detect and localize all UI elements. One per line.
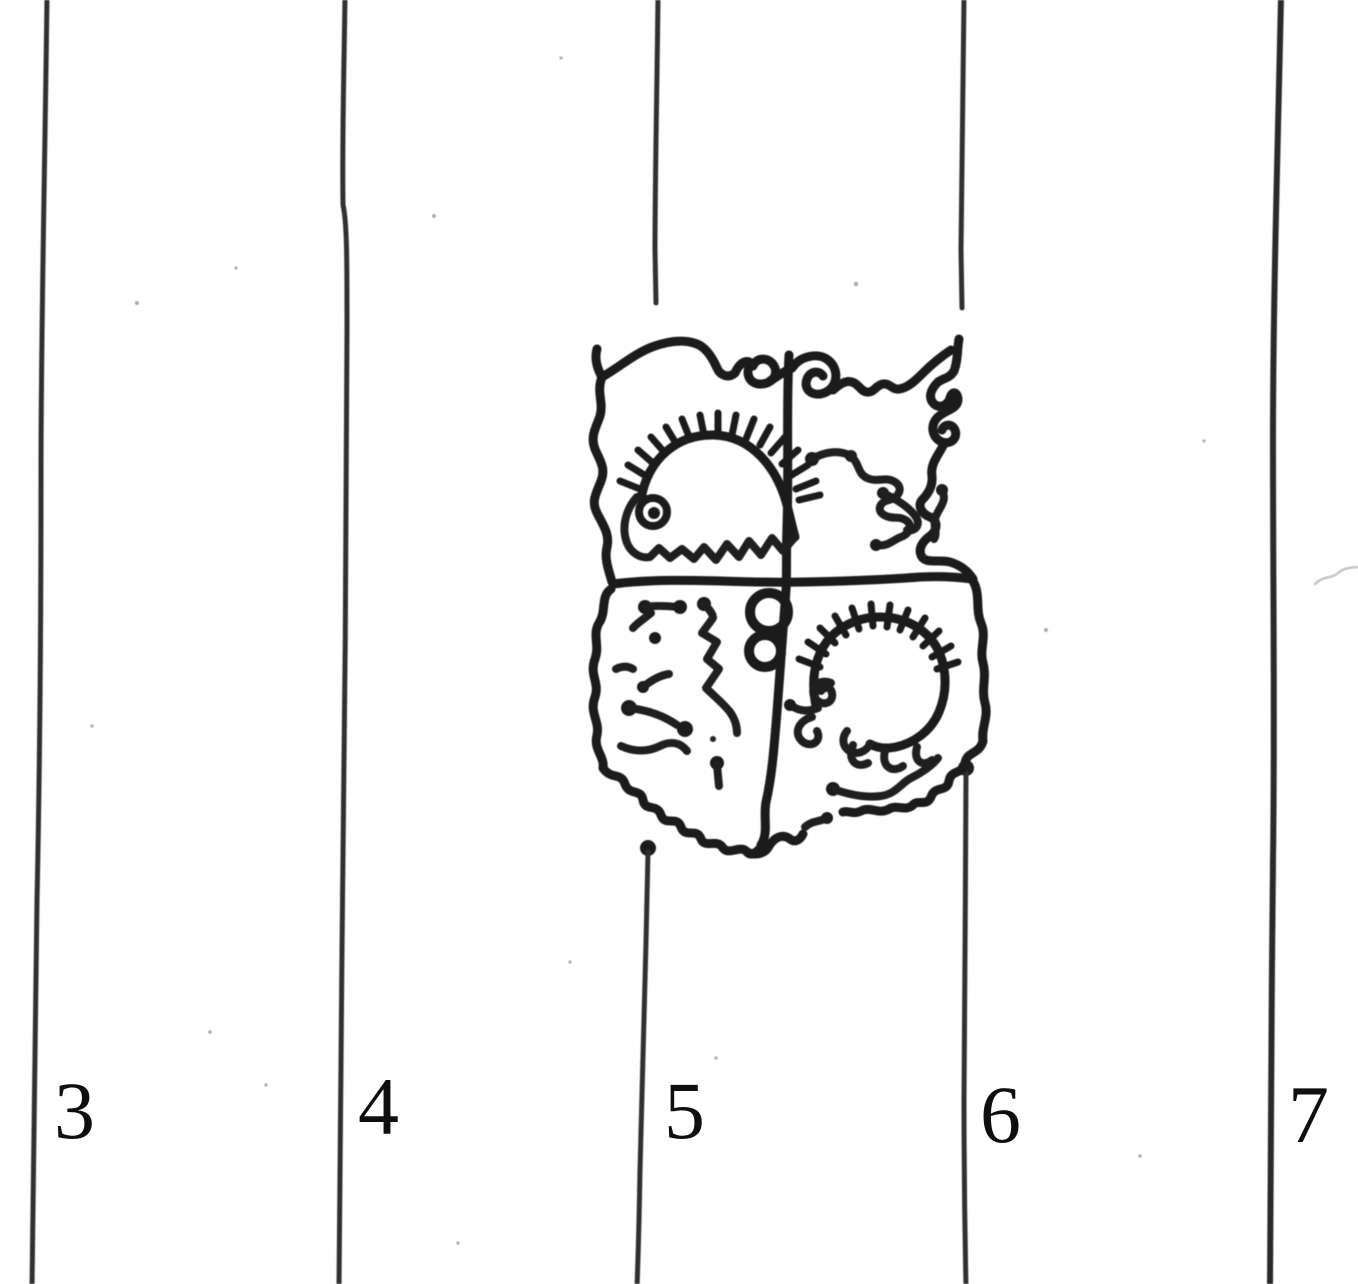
chain-line-label-3: 3	[54, 1070, 95, 1152]
watermark-quartered-shield	[593, 339, 986, 854]
chain-line-label-7: 7	[1288, 1074, 1329, 1156]
faint-curl-mark	[1315, 567, 1357, 584]
chain-line-label-4: 4	[358, 1066, 399, 1148]
scanned-tracing-page: 3 4 5 6 7	[0, 0, 1358, 1284]
ruled-line-3	[32, 0, 47, 1284]
chain-line-label-5: 5	[664, 1070, 705, 1152]
ruled-line-6	[958, 0, 974, 1284]
hedgehog-lower-right	[784, 604, 958, 797]
divider-horizontal	[613, 577, 972, 584]
spiral-crest-top	[748, 350, 951, 394]
ruled-line-4	[339, 0, 347, 1284]
lion-scribble-lower-left	[616, 597, 737, 786]
dust-specks	[90, 56, 1205, 1244]
double-rings-center	[749, 593, 788, 667]
chain-line-label-6: 6	[980, 1074, 1021, 1156]
ruled-line-7	[1270, 0, 1281, 1284]
